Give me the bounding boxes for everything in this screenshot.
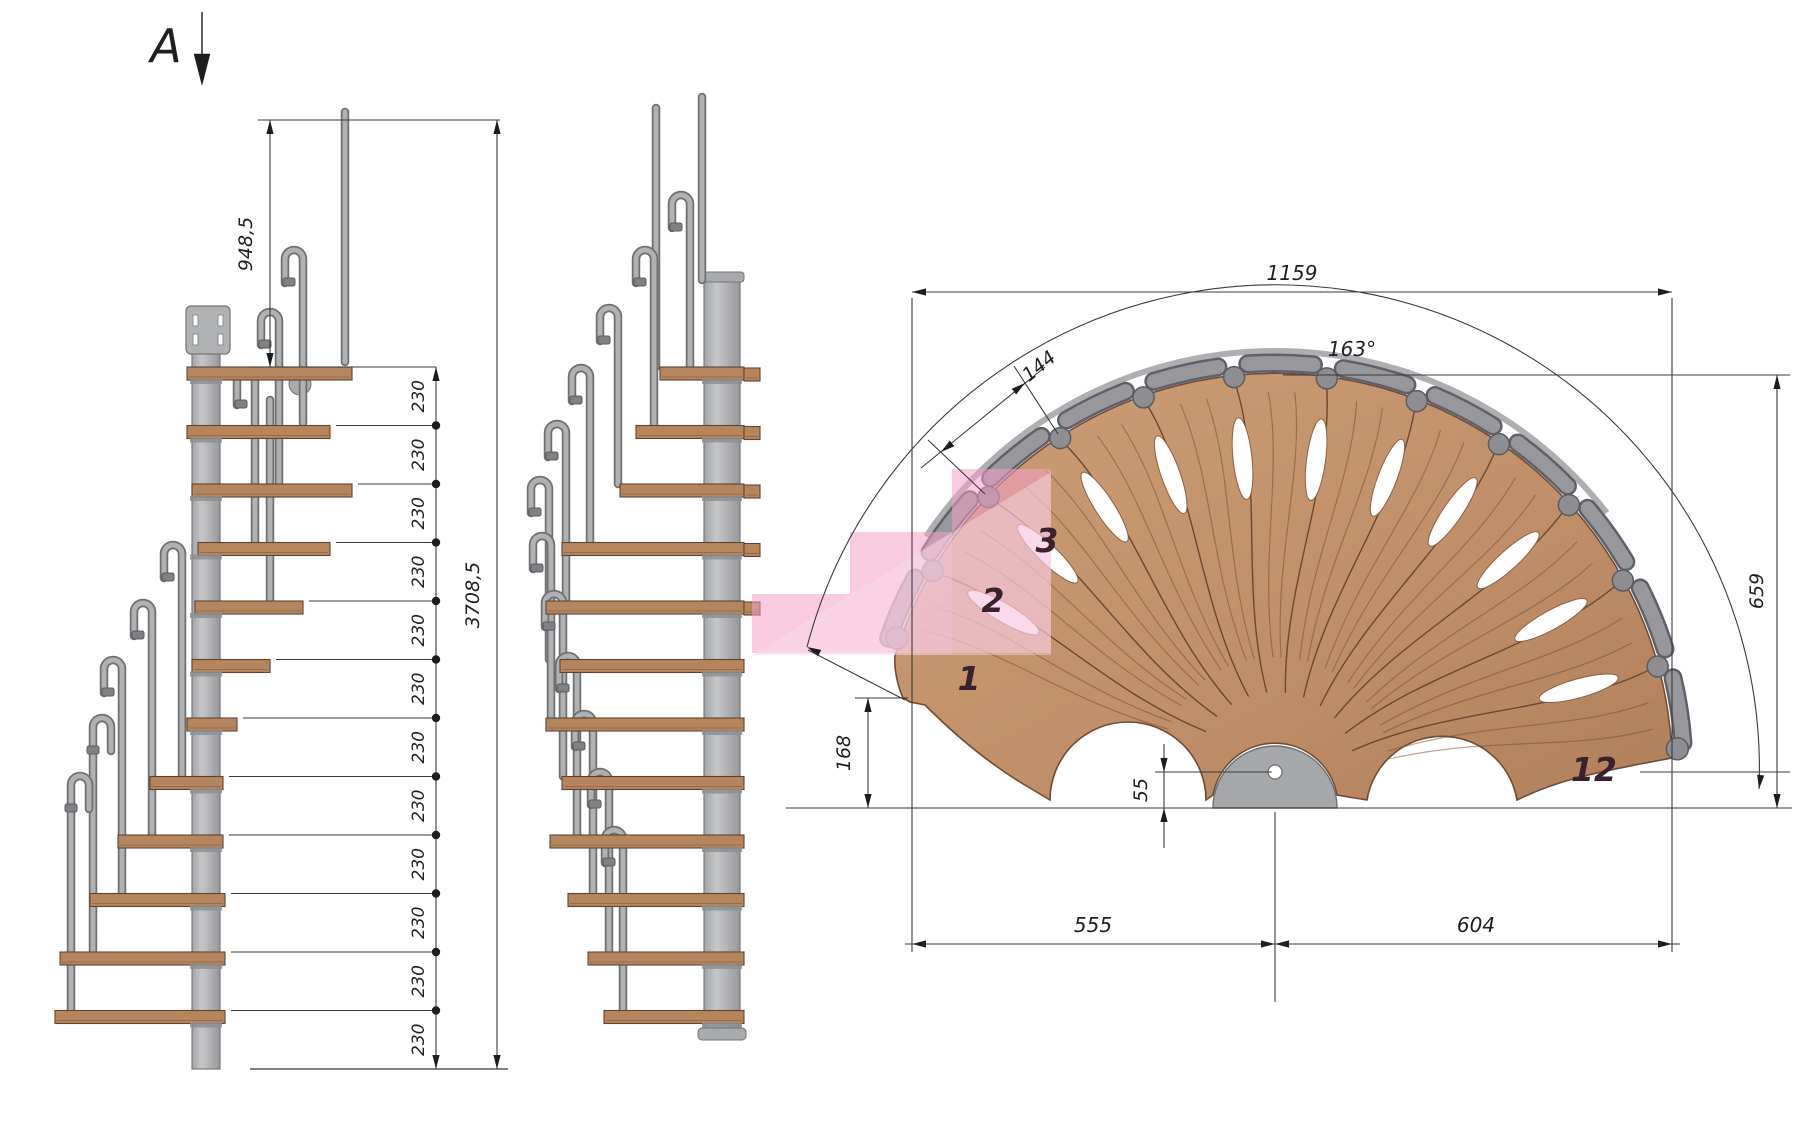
- dimension-arrow: [864, 698, 871, 712]
- riser-dimension-label: 230: [409, 380, 429, 412]
- column-joint-ring: [190, 906, 222, 911]
- wood-tread: [588, 952, 744, 965]
- center-column: [704, 278, 740, 1032]
- dimension-arrow: [266, 120, 273, 134]
- riser-dimension-label: 230: [409, 907, 429, 939]
- baluster-knob: [1612, 570, 1633, 591]
- rail-clamp: [589, 800, 601, 808]
- wood-tread: [744, 544, 760, 557]
- column-joint-ring: [190, 730, 222, 735]
- baluster-knob: [1316, 368, 1337, 389]
- chain-dimension-dot: [432, 889, 440, 897]
- chain-dimension-dot: [432, 538, 440, 546]
- rail-clamp: [670, 223, 682, 231]
- column-joint-ring: [702, 672, 742, 677]
- tread-number-2: 2: [982, 581, 1005, 620]
- rail-clamp: [65, 804, 77, 812]
- rim-tube: [1248, 363, 1314, 365]
- tread-number-3: 3: [1036, 521, 1059, 560]
- dimension-arrow: [1160, 758, 1167, 772]
- wood-tread: [187, 367, 352, 380]
- dimension-arrow: [1755, 775, 1764, 790]
- column-joint-ring: [702, 730, 742, 735]
- column-joint-ring: [702, 496, 742, 501]
- column-joint-ring: [702, 555, 742, 560]
- wood-tread: [604, 1011, 744, 1024]
- wood-tread: [562, 543, 744, 556]
- chain-dimension-dot: [432, 772, 440, 780]
- wood-tread: [546, 601, 744, 614]
- rear-elevation-view: [529, 97, 760, 1040]
- baluster-knob: [1647, 656, 1668, 677]
- dimension-arrow: [864, 794, 871, 808]
- rail-clamp: [573, 742, 585, 750]
- dim-144: 144: [1018, 346, 1060, 386]
- dimension-arrow: [1261, 940, 1275, 947]
- wood-tread: [550, 835, 744, 848]
- plate-slot-icon: [218, 315, 223, 326]
- wood-tread: [620, 484, 744, 497]
- section-arrow-label: A: [147, 19, 181, 73]
- dim-3708-5: 3708,5: [462, 562, 484, 628]
- dim-555: 555: [1074, 913, 1112, 937]
- wood-tread: [90, 894, 225, 907]
- rail-clamp: [546, 452, 558, 460]
- baluster-knob: [1488, 434, 1509, 455]
- rail-clamp: [557, 684, 569, 692]
- wood-tread: [660, 367, 744, 380]
- rail-clamp: [283, 278, 295, 286]
- baluster-post: [600, 308, 618, 484]
- chain-dimension-dot: [432, 831, 440, 839]
- column-joint-ring: [190, 1023, 222, 1028]
- riser-dimension-label: 230: [409, 439, 429, 471]
- spiral-staircase-drawing: A 948,5 3708,5 2302302302302302302302302…: [0, 0, 1800, 1122]
- column-joint-ring: [190, 496, 222, 501]
- dimension-arrow: [493, 1055, 500, 1069]
- column-joint-ring: [190, 672, 222, 677]
- chain-dimension-dot: [432, 1006, 440, 1014]
- dimension-arrow: [493, 120, 500, 134]
- baluster-post: [572, 368, 590, 543]
- column-joint-ring: [702, 964, 742, 969]
- wood-tread: [55, 1011, 225, 1024]
- dimension-arrow: [432, 367, 439, 381]
- column-joint-ring: [702, 847, 742, 852]
- wood-tread: [636, 426, 744, 439]
- technical-drawing-page: A 948,5 3708,5 2302302302302302302302302…: [0, 0, 1800, 1122]
- dim-659: 659: [1746, 573, 1768, 609]
- rail-clamp: [87, 746, 99, 754]
- chain-dimension-dot: [432, 714, 440, 722]
- baluster-knob: [1558, 495, 1579, 516]
- wood-tread: [546, 718, 744, 731]
- rail-clamp: [603, 858, 615, 866]
- column-joint-ring: [190, 438, 222, 443]
- riser-dimension-label: 230: [409, 848, 429, 880]
- dim-163deg: 163°: [1328, 337, 1376, 361]
- wall-mount-plate: [186, 306, 230, 354]
- dimension-arrow: [1773, 375, 1780, 389]
- wood-tread: [744, 427, 760, 440]
- rail-clamp: [598, 336, 610, 344]
- rail-clamp: [132, 631, 144, 639]
- tread-number-12: 12: [1571, 750, 1617, 789]
- column-top-cap: [700, 272, 744, 282]
- plate-slot-icon: [193, 315, 198, 326]
- dimension-line: [808, 650, 905, 700]
- handrail-end-cap: [1666, 738, 1688, 760]
- dim-168: 168: [833, 735, 855, 771]
- dim-1159: 1159: [1267, 261, 1318, 285]
- column-base-collar: [698, 1028, 746, 1040]
- column-joint-ring: [702, 379, 742, 384]
- riser-dimension-label: 230: [409, 556, 429, 588]
- column-joint-ring: [190, 789, 222, 794]
- baluster-post: [285, 250, 303, 423]
- wood-tread: [560, 660, 744, 673]
- rail-clamp: [162, 573, 174, 581]
- chain-dimension-dot: [432, 480, 440, 488]
- wood-tread: [744, 368, 760, 381]
- dimension-arrow: [1160, 808, 1167, 822]
- dimension-arrow: [266, 353, 273, 367]
- rail-clamp: [235, 400, 247, 408]
- riser-dimension-label: 230: [409, 965, 429, 997]
- wood-tread: [198, 543, 330, 556]
- chain-dimension-dot: [432, 655, 440, 663]
- plate-slot-icon: [218, 334, 223, 345]
- rail-clamp: [570, 396, 582, 404]
- rail-clamp: [634, 278, 646, 286]
- wood-tread: [192, 484, 352, 497]
- riser-dimension-label: 230: [409, 497, 429, 529]
- baluster-post: [237, 372, 255, 542]
- dimension-arrow: [912, 288, 926, 295]
- column-joint-ring: [702, 613, 742, 618]
- column-joint-ring: [190, 613, 222, 618]
- column-joint-ring: [702, 1023, 742, 1028]
- plate-slot-icon: [193, 334, 198, 345]
- dimension-arrow: [1275, 940, 1289, 947]
- wood-tread: [744, 485, 760, 498]
- riser-dimension-label: 230: [409, 673, 429, 705]
- dim-55: 55: [1130, 778, 1152, 802]
- wood-tread: [568, 894, 744, 907]
- wood-tread: [192, 660, 270, 673]
- baluster-post: [636, 250, 654, 426]
- wood-tread: [187, 718, 237, 731]
- wood-tread: [562, 777, 744, 790]
- wood-tread: [195, 601, 303, 614]
- dimension-arrow: [1773, 794, 1780, 808]
- dimension-arrow: [432, 1055, 439, 1069]
- dimension-arrow: [1658, 940, 1672, 947]
- side-elevation-view: [55, 112, 352, 1069]
- chain-dimension-dot: [432, 421, 440, 429]
- dimension-arrow: [912, 940, 926, 947]
- wood-tread: [118, 835, 223, 848]
- column-joint-ring: [702, 438, 742, 443]
- wood-tread: [150, 777, 223, 790]
- baluster-post: [672, 195, 690, 367]
- rail-clamp: [102, 688, 114, 696]
- riser-dimension-label: 230: [409, 1024, 429, 1056]
- chain-dimension-dot: [432, 948, 440, 956]
- dimension-arrow: [194, 54, 211, 86]
- highlight-overlay: [752, 469, 1051, 655]
- rail-clamp: [529, 508, 541, 516]
- baluster-knob: [1050, 428, 1071, 449]
- dim-948-5: 948,5: [235, 217, 257, 271]
- wood-tread: [187, 426, 330, 439]
- riser-dimension-label: 230: [409, 731, 429, 763]
- column-joint-ring: [702, 906, 742, 911]
- dimension-arrow: [1658, 288, 1672, 295]
- column-joint-ring: [190, 379, 222, 384]
- baluster-knob: [1224, 367, 1245, 388]
- rail-clamp: [543, 622, 555, 630]
- rail-clamp: [531, 564, 543, 572]
- baluster-knob: [1406, 391, 1427, 412]
- column-joint-ring: [702, 789, 742, 794]
- column-joint-ring: [190, 964, 222, 969]
- column-joint-ring: [190, 847, 222, 852]
- tread-number-1: 1: [958, 659, 981, 698]
- baluster-knob: [1133, 387, 1154, 408]
- column-joint-ring: [190, 555, 222, 560]
- chain-dimension-dot: [432, 597, 440, 605]
- rail-clamp: [259, 340, 271, 348]
- dim-604: 604: [1457, 913, 1495, 937]
- riser-dimension-label: 230: [409, 790, 429, 822]
- wood-tread: [60, 952, 225, 965]
- riser-dimension-label: 230: [409, 614, 429, 646]
